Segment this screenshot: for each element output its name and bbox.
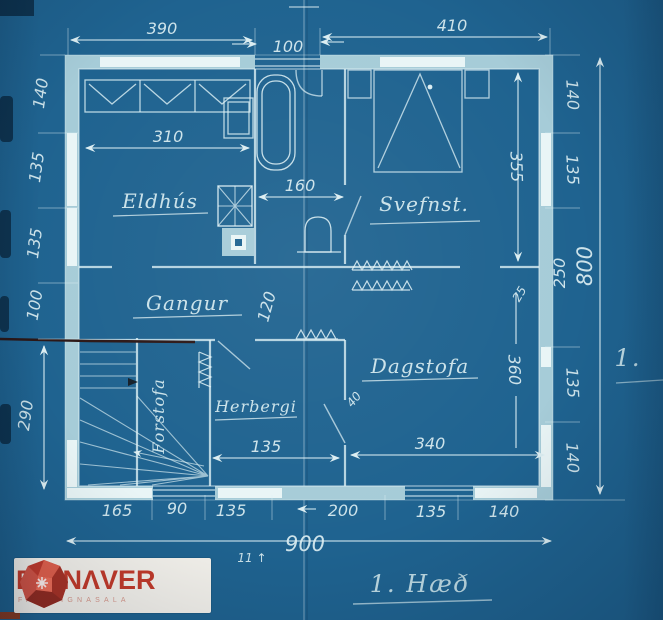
dim-bottom-140: 140 xyxy=(489,502,520,521)
dim-right-135b: 135 xyxy=(562,367,583,398)
wall-left xyxy=(65,55,79,500)
dim-small-40: 40 xyxy=(344,389,365,410)
dim-bottom-total-900: 900 xyxy=(285,532,325,556)
dim-right-135a: 135 xyxy=(562,154,583,185)
sheet-note: 1. xyxy=(615,344,642,372)
blueprint-sheet: 390 100 410 140 135 135 100 290 140 135 … xyxy=(0,0,663,620)
dim-left-100: 100 xyxy=(23,288,47,321)
window xyxy=(541,133,551,206)
dim-right-250: 250 xyxy=(550,258,569,289)
dim-bottom-135a: 135 xyxy=(216,501,247,520)
label-underline xyxy=(370,221,480,224)
window xyxy=(100,57,240,67)
dim-living-360: 360 xyxy=(504,354,524,385)
cabinet-marks xyxy=(89,84,246,104)
label-underline xyxy=(215,417,297,420)
dim-bath-160: 160 xyxy=(285,176,316,195)
top-door-opening xyxy=(255,59,320,66)
toilet xyxy=(305,217,331,252)
label-room: Herbergi xyxy=(214,397,297,416)
dark-patch xyxy=(0,296,9,332)
label-underline xyxy=(113,213,208,216)
dim-room-135: 135 xyxy=(251,437,282,456)
bathtub-inner xyxy=(262,81,290,164)
side-table xyxy=(348,70,371,98)
dark-patch xyxy=(0,404,11,444)
door-leaf xyxy=(345,196,361,235)
window xyxy=(67,133,77,206)
inner-wall-edge xyxy=(79,69,539,486)
kitchen-counter xyxy=(85,80,250,112)
label-living: Dagstofa xyxy=(370,354,469,378)
window xyxy=(67,440,77,487)
door-leaf xyxy=(218,341,250,369)
label-underline xyxy=(133,315,242,318)
stove-hatch xyxy=(218,186,252,226)
bath-fixtures xyxy=(257,75,341,252)
dim-left-140: 140 xyxy=(29,77,52,110)
interior-walls xyxy=(79,69,539,486)
dim-small-25: 25 xyxy=(510,284,530,304)
dim-top-390: 390 xyxy=(147,19,178,38)
sheet-note-underline xyxy=(616,380,663,383)
window xyxy=(380,57,465,67)
winder-steps xyxy=(80,396,208,485)
radiator xyxy=(352,281,412,290)
pencil-note-11: 11 ↑ xyxy=(237,551,266,565)
label-hall: Gangur xyxy=(146,291,228,315)
gem-icon xyxy=(16,558,72,610)
bed xyxy=(348,70,489,172)
floor-plan-drawing: 390 100 410 140 135 135 100 290 140 135 … xyxy=(0,0,663,620)
window xyxy=(541,347,551,367)
extension-lines xyxy=(38,28,625,520)
dim-bottom-200: 200 xyxy=(328,501,359,520)
window xyxy=(67,208,77,266)
realtor-logo: EIGNΛVER FASTEIGNASALA xyxy=(14,558,211,613)
dark-patch xyxy=(0,210,11,258)
window xyxy=(541,425,551,487)
floor-caption: 1. Hæð xyxy=(370,570,470,598)
dim-left-290: 290 xyxy=(14,399,37,432)
dim-bottom-90: 90 xyxy=(167,499,187,518)
dim-bottom-135b: 135 xyxy=(416,502,447,521)
dim-left-135b: 135 xyxy=(23,227,46,260)
stove-chimney xyxy=(218,186,254,256)
bed-frame xyxy=(374,70,462,172)
dim-bottom-165: 165 xyxy=(102,501,133,520)
windows xyxy=(67,57,551,498)
dim-living-340: 340 xyxy=(415,434,446,453)
radiator xyxy=(352,261,412,270)
label-underline xyxy=(362,378,478,381)
label-kitchen: Eldhús xyxy=(121,189,198,213)
dim-right-140a: 140 xyxy=(562,79,583,110)
dim-top-100: 100 xyxy=(273,37,304,56)
dim-hall-120: 120 xyxy=(254,289,280,323)
radiator xyxy=(296,330,338,339)
fold-line xyxy=(289,0,319,620)
appliance-inner xyxy=(228,102,249,134)
dim-top-410: 410 xyxy=(437,16,468,35)
bed-cross xyxy=(378,74,460,168)
caption-underline xyxy=(353,600,492,604)
red-smudge xyxy=(0,612,20,619)
dark-patch xyxy=(0,0,34,16)
dimension-numbers: 390 100 410 140 135 135 100 290 140 135 … xyxy=(14,16,597,565)
side-table xyxy=(465,70,489,98)
door-arc xyxy=(296,70,322,96)
window xyxy=(475,488,537,498)
dim-right-140b: 140 xyxy=(562,442,583,473)
bed-dot xyxy=(428,85,433,90)
dim-bedroom-355: 355 xyxy=(506,151,526,182)
label-entry: Forstofa xyxy=(149,378,168,454)
label-bedroom: Svefnst. xyxy=(379,192,469,216)
dim-kitchen-310: 310 xyxy=(153,127,184,146)
room-labels: Eldhús Svefnst. Gangur Dagstofa Herbergi… xyxy=(113,189,480,455)
stairs xyxy=(80,352,208,485)
dim-left-135a: 135 xyxy=(25,151,48,184)
door-leaf xyxy=(324,404,345,443)
dark-patch xyxy=(0,96,13,142)
chimney-hole xyxy=(235,239,242,246)
window xyxy=(67,488,152,498)
dim-right-total-800: 800 xyxy=(573,246,597,286)
